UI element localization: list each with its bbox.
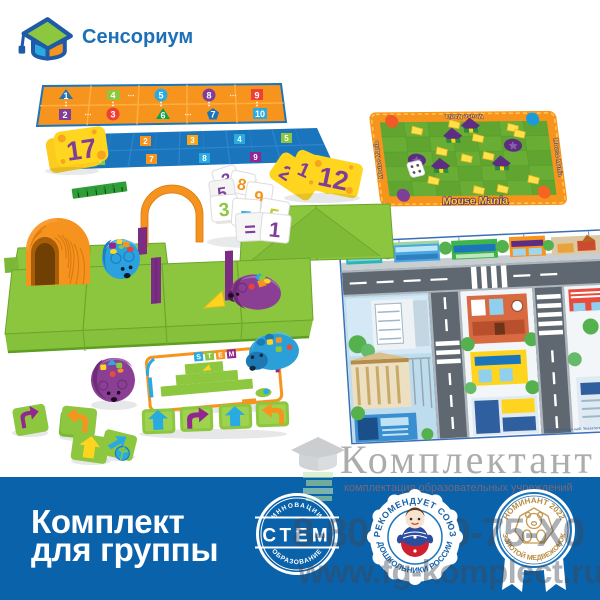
svg-text:3: 3	[190, 136, 195, 145]
svg-text:4: 4	[237, 135, 242, 144]
svg-text:www.fg-komplect.ru: www.fg-komplect.ru	[297, 553, 600, 590]
svg-text:3: 3	[218, 200, 230, 222]
svg-text:2: 2	[143, 137, 148, 146]
svg-text:⋯: ⋯	[230, 93, 237, 100]
svg-text:⋯: ⋯	[128, 93, 135, 100]
svg-text:7: 7	[149, 155, 154, 164]
svg-text:6: 6	[160, 111, 165, 121]
svg-text:8: 8	[202, 154, 207, 163]
svg-text:5: 5	[158, 91, 163, 101]
svg-text:7: 7	[210, 110, 215, 120]
svg-text:9: 9	[253, 153, 258, 162]
svg-text:4: 4	[110, 91, 115, 101]
svg-text:Mouse Mania: Mouse Mania	[442, 195, 510, 208]
svg-text:=: =	[244, 219, 257, 242]
svg-text:8: 8	[206, 91, 211, 101]
svg-text:E: E	[218, 352, 224, 359]
svg-text:3: 3	[110, 110, 115, 120]
svg-text:10: 10	[255, 109, 265, 119]
svg-text:5: 5	[284, 134, 289, 143]
svg-text:S: S	[196, 354, 202, 361]
svg-text:9: 9	[254, 91, 259, 101]
svg-text:Сенсориум: Сенсориум	[82, 26, 193, 48]
svg-text:M: M	[228, 351, 235, 358]
svg-text:1: 1	[63, 91, 68, 101]
svg-text:для группы: для группы	[31, 531, 218, 568]
svg-text:⋯: ⋯	[185, 112, 192, 119]
svg-text:17: 17	[65, 133, 99, 167]
svg-text:2: 2	[62, 110, 67, 120]
svg-text:Mouse Mania: Mouse Mania	[444, 112, 483, 118]
svg-text:Комплектант: Комплектант	[340, 437, 595, 482]
svg-text:12: 12	[316, 161, 352, 197]
svg-text:⋯: ⋯	[85, 112, 92, 119]
